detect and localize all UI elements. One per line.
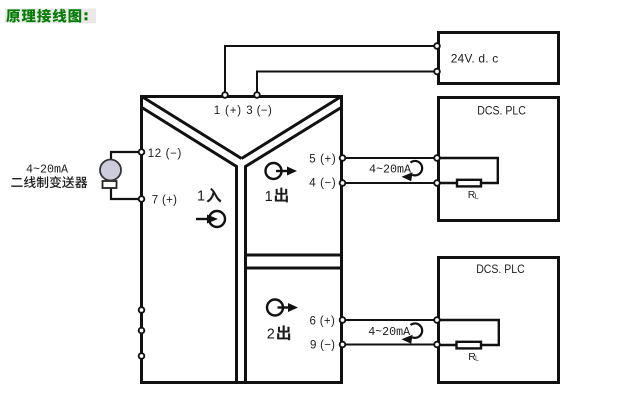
svg-text:3 (−): 3 (−) bbox=[246, 105, 272, 117]
svg-text:6 (+): 6 (+) bbox=[310, 316, 335, 328]
svg-text:1: 1 bbox=[197, 189, 205, 205]
svg-text:L: L bbox=[475, 193, 479, 200]
svg-text:1 (+): 1 (+) bbox=[214, 105, 241, 117]
svg-text:1: 1 bbox=[265, 189, 273, 205]
svg-text:12 (−): 12 (−) bbox=[148, 148, 182, 160]
svg-text:4 (−): 4 (−) bbox=[309, 178, 336, 190]
svg-text:4~20mA: 4~20mA bbox=[26, 162, 69, 176]
svg-text:DCS. PLC: DCS. PLC bbox=[477, 103, 526, 117]
svg-text:7 (+): 7 (+) bbox=[152, 195, 177, 207]
svg-text:2: 2 bbox=[267, 327, 275, 343]
svg-text:4~20mA: 4~20mA bbox=[368, 325, 411, 339]
svg-text:L: L bbox=[475, 356, 479, 363]
svg-text:5 (+): 5 (+) bbox=[309, 153, 336, 165]
svg-text:4~20mA: 4~20mA bbox=[369, 162, 412, 176]
svg-text:9 (−): 9 (−) bbox=[310, 339, 335, 351]
svg-text:DCS. PLC: DCS. PLC bbox=[476, 262, 525, 276]
svg-text:24V. d. c: 24V. d. c bbox=[451, 52, 499, 66]
